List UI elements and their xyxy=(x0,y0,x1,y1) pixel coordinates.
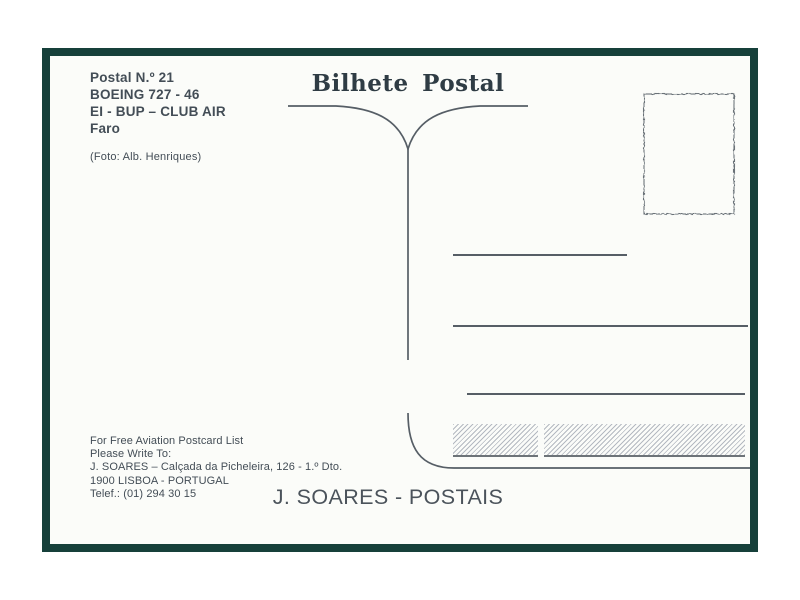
publisher-line-2: Please Write To: xyxy=(90,448,342,461)
publisher-line-1: For Free Aviation Postcard List xyxy=(90,435,342,448)
postal-code-box-2 xyxy=(544,424,745,457)
postcard-frame: Postal N.º 21 BOEING 727 - 46 EI - BUP –… xyxy=(42,48,758,552)
caption-line-aircraft: BOEING 727 - 46 xyxy=(90,86,226,103)
footer-imprint: J. SOARES - POSTAIS xyxy=(268,485,508,510)
postal-code-box-1 xyxy=(453,424,538,457)
top-divider-curve xyxy=(288,106,528,149)
publisher-line-3: J. SOARES – Calçada da Picheleira, 126 -… xyxy=(90,461,342,474)
caption-line-registration: EI - BUP – CLUB AIR xyxy=(90,103,226,120)
photo-credit: (Foto: Alb. Henriques) xyxy=(90,151,201,163)
caption-line-number: Postal N.º 21 xyxy=(90,69,226,86)
postcard-back: Postal N.º 21 BOEING 727 - 46 EI - BUP –… xyxy=(50,56,750,544)
caption-line-location: Faro xyxy=(90,120,226,137)
stamp-box xyxy=(640,90,738,218)
postcard-title: Bilhete Postal xyxy=(268,70,548,97)
caption-block: Postal N.º 21 BOEING 727 - 46 EI - BUP –… xyxy=(90,69,226,137)
